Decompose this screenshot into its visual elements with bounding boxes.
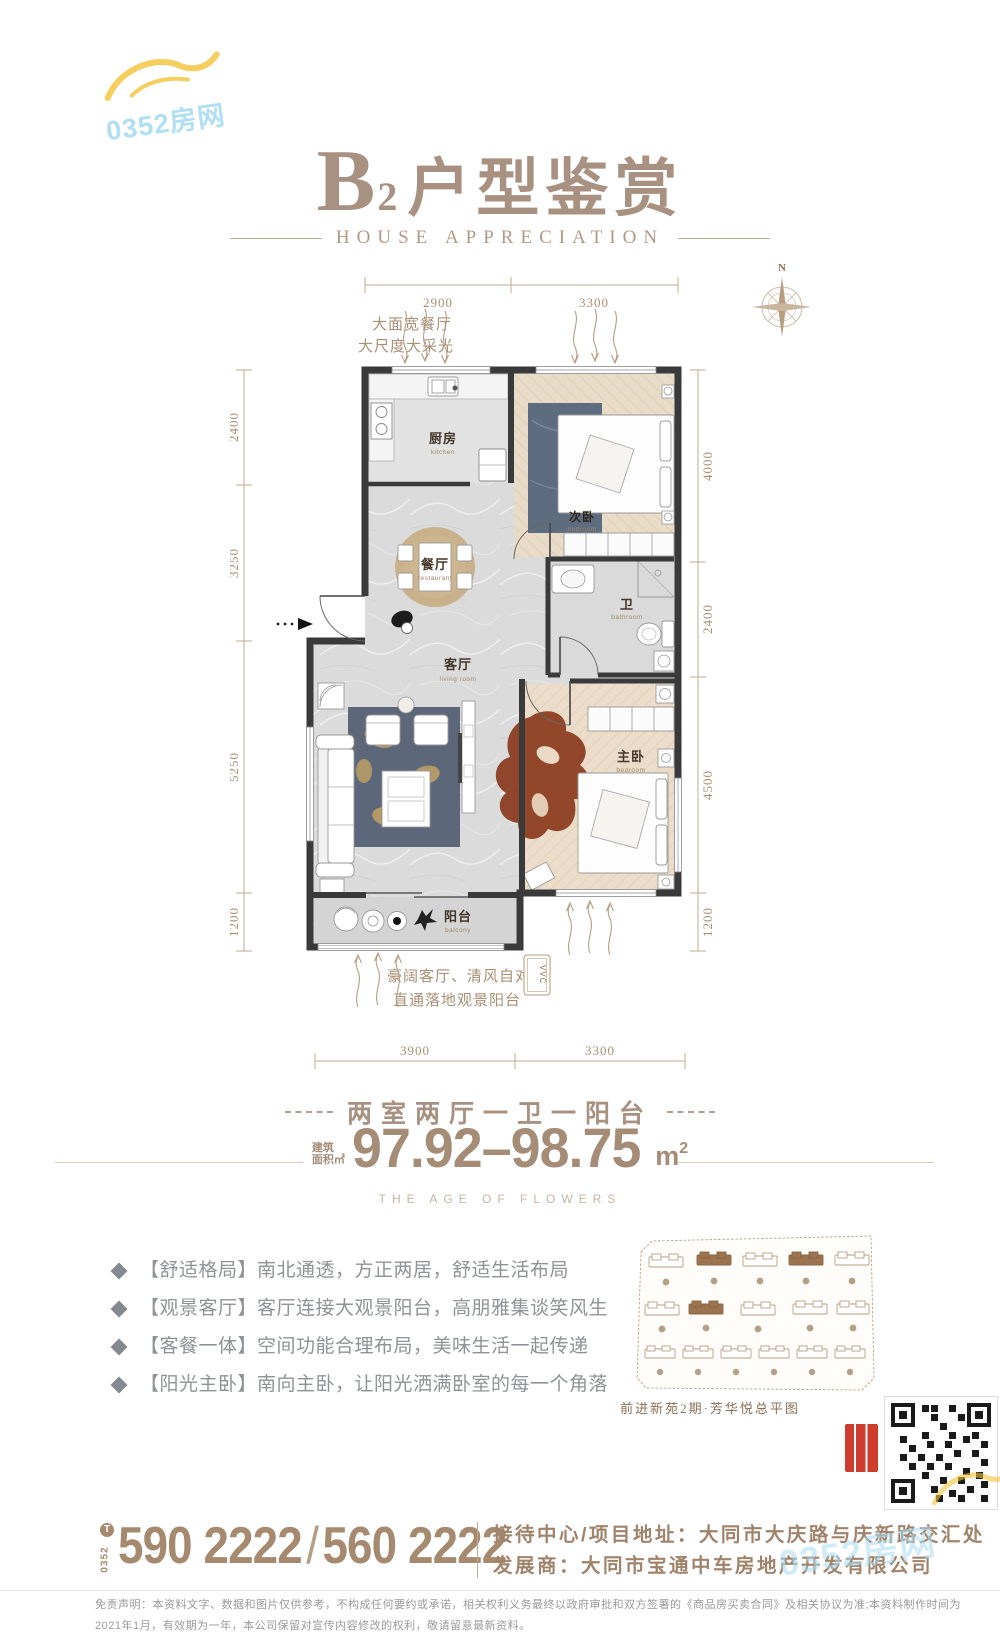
- svg-text:bedroom: bedroom: [616, 767, 645, 774]
- dimension-top: 2900 3300: [365, 277, 678, 310]
- label-kitchen: 厨房: [429, 431, 457, 446]
- page-subtitle: HOUSE APPRECIATION: [0, 227, 1000, 249]
- floorplan-poster: 0352房网 B 2 户型鉴赏 HOUSE APPRECIATION: [0, 0, 1000, 1647]
- svg-text:bedroom: bedroom: [567, 526, 596, 533]
- title-subscript: 2: [377, 177, 397, 217]
- svg-text:3300: 3300: [585, 1043, 615, 1058]
- feature-item: 【客餐一体】空间功能合理布局，美味生活一起传递: [113, 1336, 608, 1358]
- phone-numbers: 590 2222/560 2222: [118, 1516, 506, 1576]
- svg-text:2400: 2400: [700, 604, 715, 634]
- svg-text:豪阔客厅、清风自对流: 豪阔客厅、清风自对流: [387, 967, 547, 985]
- svg-text:kitchen: kitchen: [431, 449, 455, 456]
- site-watermark: 0352房网: [96, 44, 233, 149]
- svg-text:living room: living room: [440, 676, 477, 683]
- label-master: 主卧: [617, 749, 645, 764]
- feature-item: 【观景客厅】客厅连接大观景阳台，高朋雅集谈笑风生: [113, 1298, 608, 1320]
- svg-text:5250: 5250: [230, 752, 241, 782]
- svg-text:大尺度大采光: 大尺度大采光: [358, 338, 454, 355]
- dimension-bottom: 3900 3300: [315, 1043, 685, 1069]
- svg-text:1200: 1200: [700, 907, 715, 937]
- svg-text:2400: 2400: [230, 412, 241, 442]
- dimension-left: 2400 3250 5250 1200: [230, 370, 252, 951]
- svg-text:大面宽餐厅: 大面宽餐厅: [372, 316, 452, 333]
- dimension-right: 4000 2400 4500 1200: [690, 370, 715, 951]
- svg-text:3250: 3250: [230, 548, 241, 578]
- red-seal: [845, 1424, 878, 1472]
- annotation-bottom: 豪阔客厅、清风自对流 直通落地观景阳台: [387, 967, 547, 1009]
- qr-finder: [891, 1479, 915, 1503]
- subtitle-line-right: [678, 238, 770, 239]
- feature-item: 【舒适格局】南北通透，方正两居，舒适生活布局: [113, 1260, 608, 1282]
- title-chinese: 户型鉴赏: [407, 158, 683, 221]
- ac-platform: VVC: [524, 955, 550, 995]
- area-unit: m2: [655, 1129, 688, 1176]
- svg-text:直通落地观景阳台: 直通落地观景阳台: [393, 992, 521, 1009]
- label-bath: 卫: [620, 597, 634, 612]
- dash-right: [667, 1111, 715, 1113]
- qr-modules: [922, 1405, 929, 1412]
- phone-area-code: 0352: [100, 1541, 111, 1579]
- dash-left: [285, 1111, 333, 1113]
- diamond-icon: [111, 1263, 128, 1280]
- siteplan-caption: 前进新苑2期·芳华悦总平图: [545, 1398, 875, 1417]
- label-balcony: 阳台: [444, 909, 472, 924]
- disclaimer: 免责声明：本资料文字、数据和图片仅供参考，不构成任何要约或承诺，相关权利义务最终…: [95, 1595, 985, 1637]
- label-bedroom2: 次卧: [569, 509, 595, 524]
- title-letter: B: [317, 138, 376, 226]
- footer-divider: [477, 1522, 478, 1578]
- label-living: 客厅: [444, 657, 472, 672]
- svg-text:restaurant: restaurant: [418, 575, 452, 582]
- diamond-icon: [111, 1377, 128, 1394]
- compass-icon: N: [752, 262, 810, 337]
- siteplan-map: [545, 1192, 875, 1392]
- area-summary: 建筑 面积㎡ 97.92–98.75 m2: [0, 1120, 1000, 1176]
- feature-list: 【舒适格局】南北通透，方正两居，舒适生活布局 【观景客厅】客厅连接大观景阳台，高…: [113, 1260, 608, 1412]
- qr-finder: [967, 1403, 991, 1427]
- disclaimer-separator: [0, 1590, 1000, 1591]
- diamond-icon: [111, 1301, 128, 1318]
- area-value: 97.92–98.75: [352, 1120, 640, 1176]
- subtitle-line-left: [230, 238, 322, 239]
- svg-text:3300: 3300: [579, 295, 609, 310]
- svg-text:2900: 2900: [423, 295, 453, 310]
- area-label: 建筑 面积㎡: [312, 1142, 345, 1166]
- page-title: B 2 户型鉴赏: [0, 138, 1000, 226]
- svg-text:bathroom: bathroom: [611, 614, 642, 621]
- svg-text:4000: 4000: [700, 451, 715, 481]
- floorplan-drawing: 2900 3300 2400 3250 5250 1200 4000 2400: [230, 255, 810, 1080]
- svg-text:3900: 3900: [400, 1043, 430, 1058]
- svg-text:N: N: [778, 262, 786, 274]
- entrance-arrow: [277, 618, 313, 630]
- qr-finder: [891, 1403, 915, 1427]
- feature-item: 【阳光主卧】南向主卧，让阳光洒满卧室的每一个角落: [113, 1374, 608, 1396]
- svg-text:VVC: VVC: [538, 965, 547, 984]
- svg-text:balcony: balcony: [445, 927, 471, 934]
- label-dining: 餐厅: [420, 557, 449, 572]
- diamond-icon: [111, 1339, 128, 1356]
- svg-text:4500: 4500: [700, 770, 715, 800]
- svg-text:1200: 1200: [230, 907, 241, 937]
- phone-icon: T: [100, 1523, 114, 1537]
